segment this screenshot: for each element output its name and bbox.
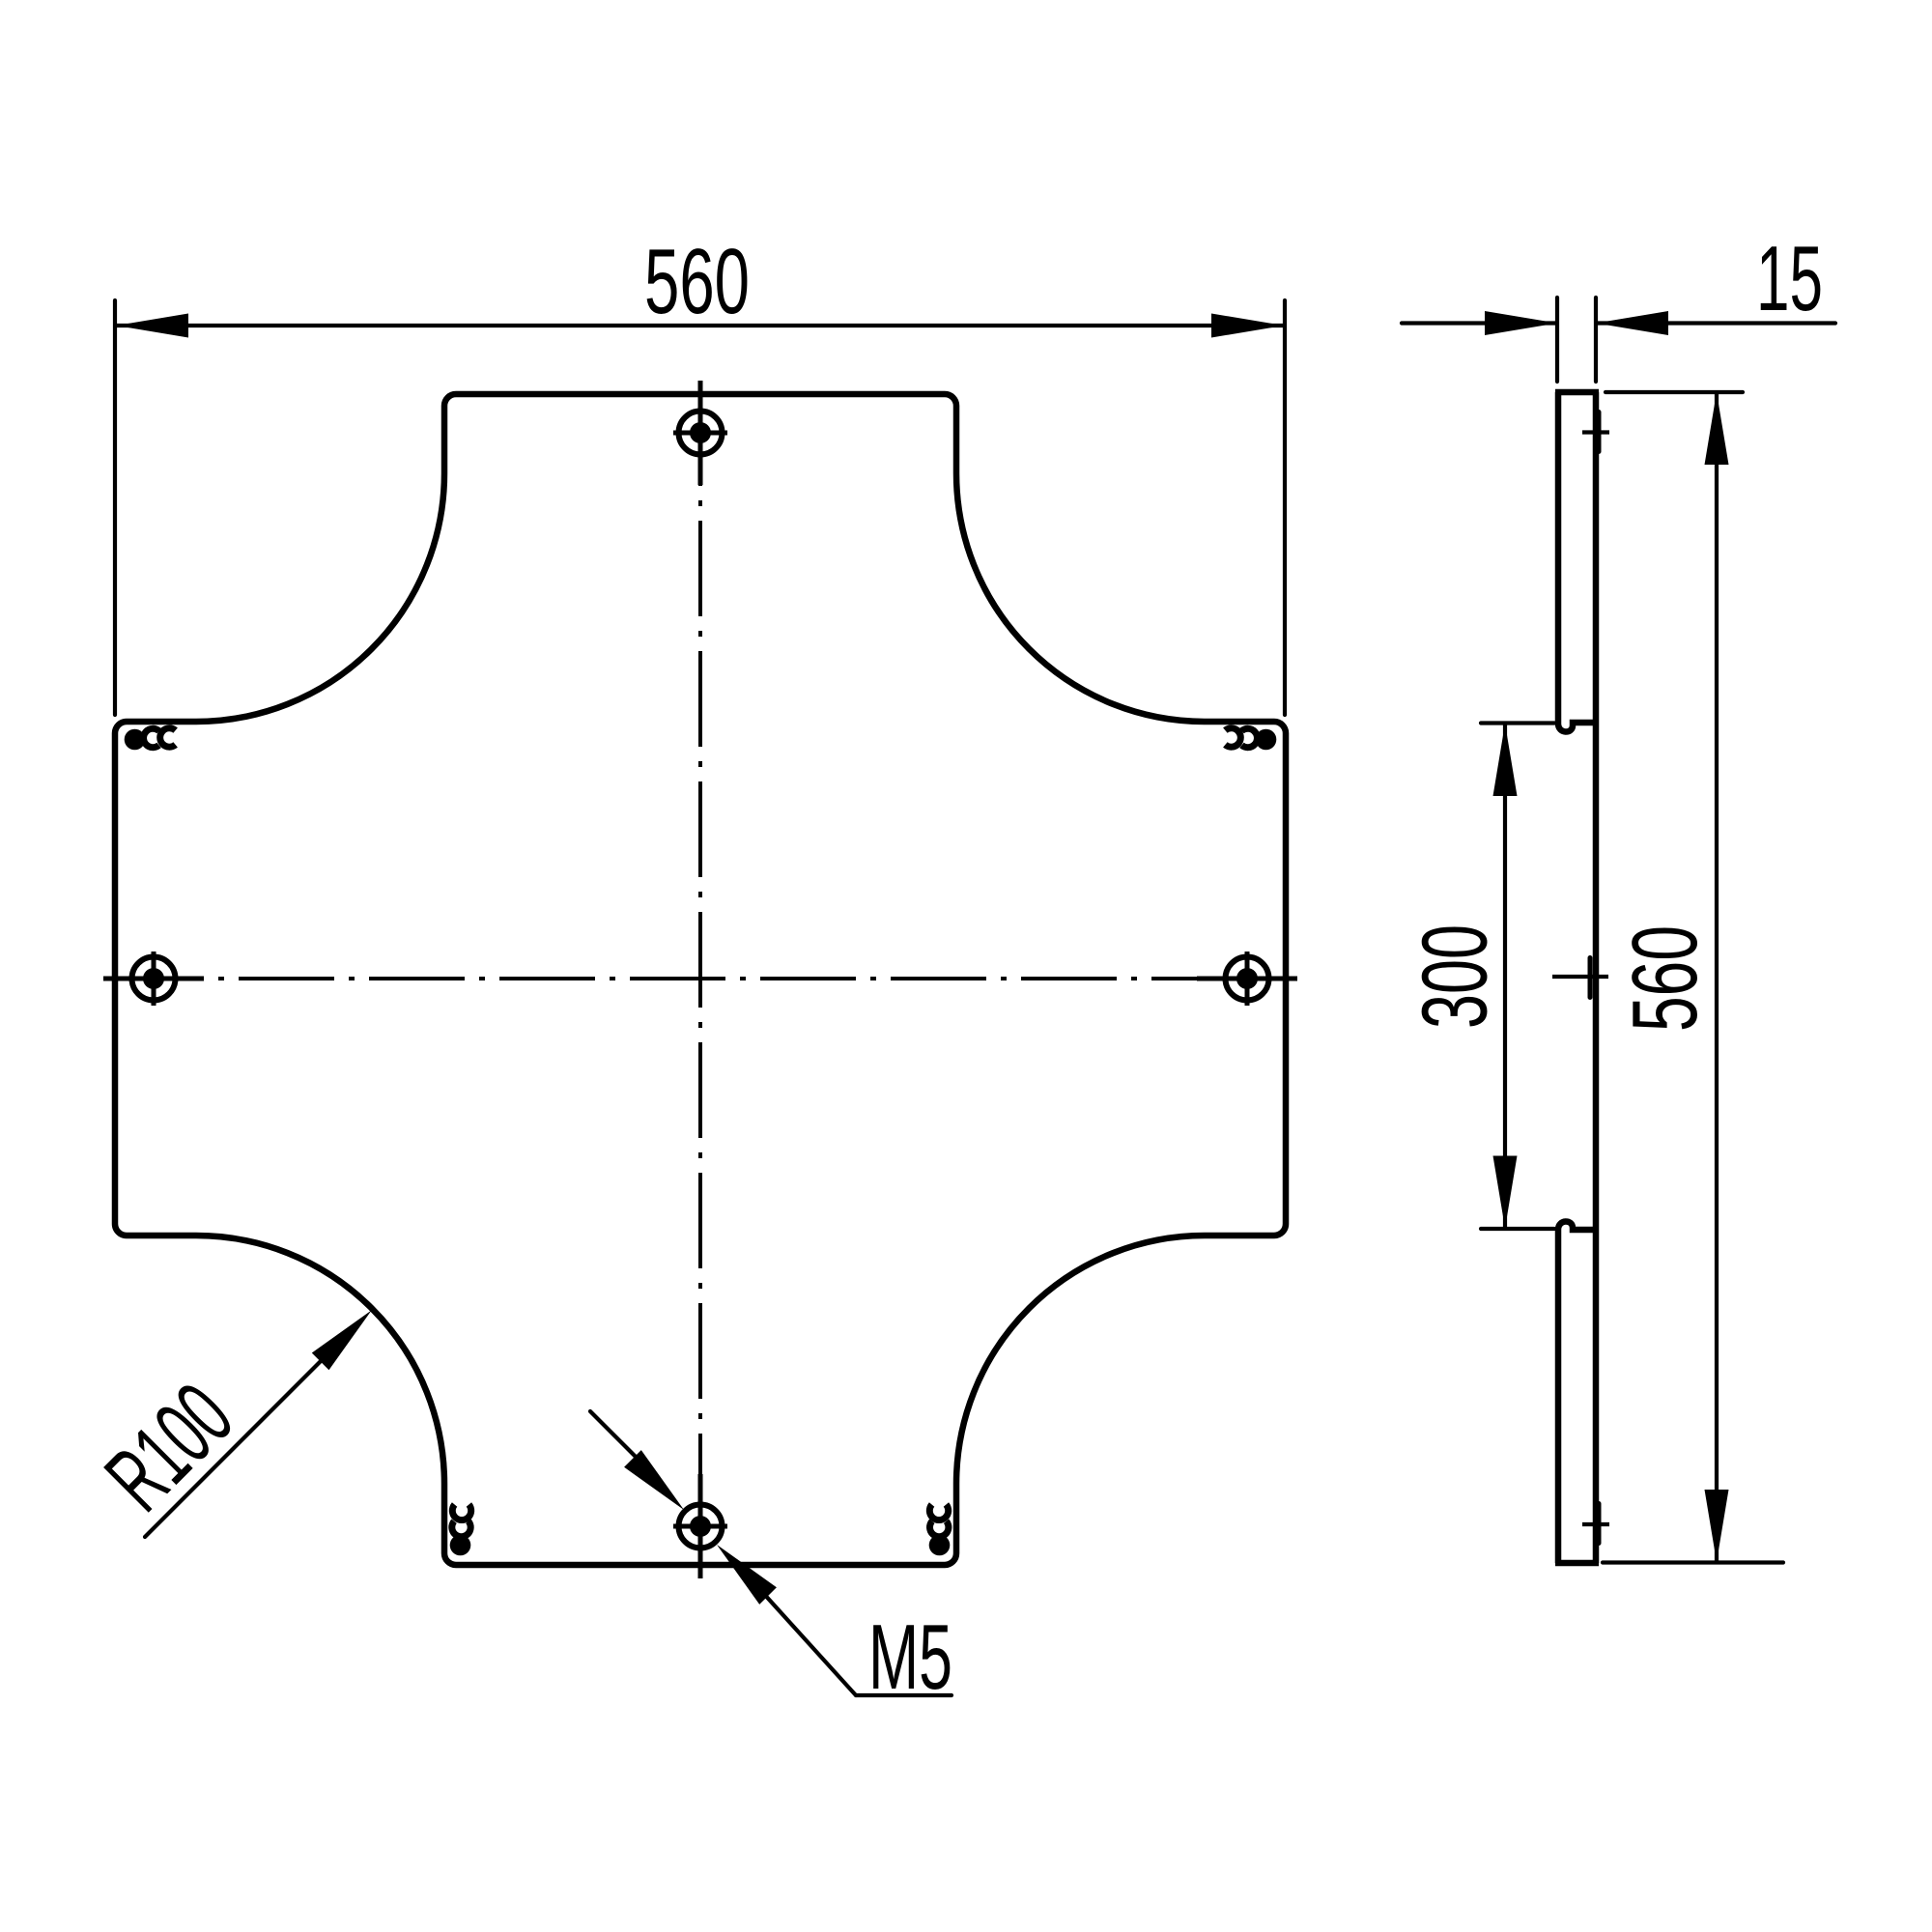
svg-text:R100: R100 (87, 1365, 252, 1530)
svg-text:300: 300 (1404, 924, 1507, 1029)
svg-text:560: 560 (644, 230, 750, 333)
svg-text:560: 560 (1613, 925, 1717, 1032)
svg-text:M5: M5 (868, 1605, 952, 1709)
svg-text:15: 15 (1756, 227, 1823, 330)
